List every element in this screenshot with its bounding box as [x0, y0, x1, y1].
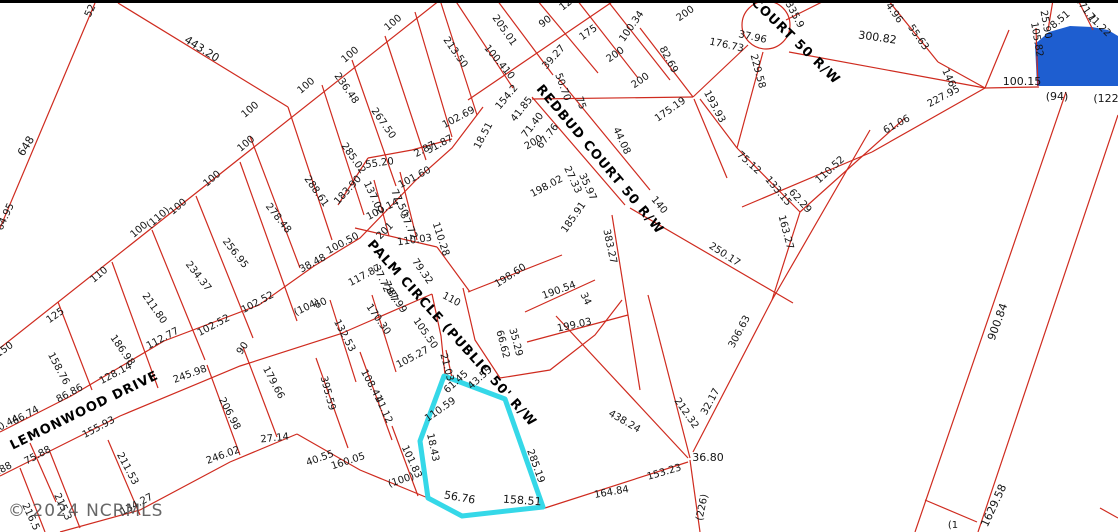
dimension-label: 100	[240, 100, 262, 121]
dimension-label: 285.02	[339, 141, 368, 176]
parcel-line	[556, 316, 688, 458]
dimension-label: 110	[89, 265, 111, 286]
dimension-label: 185.91	[559, 200, 588, 235]
dimension-label: 21.03	[437, 352, 455, 383]
dimension-label: 110.59	[423, 395, 458, 424]
dimension-label: 648	[15, 134, 37, 159]
dimension-label: 246.02	[205, 444, 242, 466]
map-top-border	[0, 0, 1118, 3]
dimension-label: (122	[1093, 92, 1118, 105]
dimension-label: 100	[202, 169, 224, 190]
dimension-label: 198.02	[529, 174, 565, 200]
dimension-label: 245.98	[172, 363, 209, 385]
dimension-label: 102.69	[441, 105, 477, 131]
dimension-label: 229.58	[748, 53, 768, 90]
parcel-line	[1100, 508, 1118, 518]
dimension-label: 125	[45, 306, 67, 326]
parcel-line	[925, 500, 977, 522]
dimension-label: 101.60	[397, 165, 433, 191]
dimension-label: 158.51	[503, 493, 542, 509]
street-label: REDBUD COURT 50 R/W	[533, 82, 667, 237]
dimension-label: 18.43	[424, 432, 441, 462]
plat-map-canvas: 52443.2064864.95100100100100100100100(11…	[0, 0, 1118, 532]
dimension-label: 38.48	[298, 252, 328, 275]
dimension-label: 199.03	[556, 317, 593, 335]
dimension-label: 100.34	[617, 9, 646, 44]
dimension-label: (226)	[694, 493, 710, 522]
dimension-label: 1629.58	[978, 482, 1009, 529]
dimension-label: 100	[236, 134, 258, 155]
dimension-label: 383.27	[600, 228, 618, 265]
dimension-label: 193.93	[701, 89, 727, 125]
dimension-label: 267.50	[369, 106, 398, 141]
dimension-label: 100	[296, 76, 318, 97]
dimension-label: 163.27	[776, 214, 796, 251]
dimension-label: 179.66	[260, 365, 286, 401]
dimension-label: 250.17	[707, 241, 742, 269]
dimension-label: 82.69	[657, 45, 680, 75]
dimension-label: 212.32	[672, 396, 701, 431]
dimension-label: 102.52	[240, 290, 276, 316]
dimension-label: 227.95	[926, 84, 962, 110]
dimension-label: 105.27	[395, 345, 431, 371]
dimension-label: 155.93	[81, 415, 117, 441]
dimension-label: (1	[948, 520, 958, 531]
dimension-label: 300.82	[858, 28, 898, 46]
dimension-label: 288.61	[302, 174, 331, 209]
dimension-label: 41.12	[372, 395, 394, 426]
dimension-label: 75.88	[23, 444, 53, 467]
dimension-label: 205.01	[490, 13, 519, 48]
dimension-label: 112.77	[145, 326, 181, 352]
dimension-label: 44.08	[610, 126, 632, 157]
dimension-label: 278.48	[263, 201, 293, 235]
dimension-label: 190.54	[541, 279, 578, 301]
dimension-label: 100.410	[481, 43, 516, 82]
dimension-label: 150	[0, 340, 16, 360]
dimension-label: 34	[578, 291, 593, 307]
parcel-line	[648, 295, 690, 458]
dimension-label: 164.84	[593, 484, 629, 501]
dimension-label: 31.87	[425, 133, 455, 156]
dimension-label: 198.60	[493, 262, 528, 290]
parcel-line	[385, 36, 426, 160]
dimension-label: 175	[578, 23, 600, 43]
dimension-label: 100	[340, 45, 362, 66]
dimension-label: 236.48	[332, 71, 361, 106]
dimension-label: 200	[605, 45, 627, 65]
dimension-label: 18.51	[472, 121, 495, 151]
dimension-label: 64.95	[0, 202, 17, 233]
dimension-label: 27.14	[260, 432, 290, 446]
dimension-label: 55.63	[905, 23, 930, 53]
parcel-line	[0, 3, 95, 228]
watermark: © 2024 NCRMLS	[8, 501, 163, 521]
dimension-label: 56.76	[443, 488, 476, 506]
dimension-label: 86.86	[55, 382, 85, 405]
dimension-label: 175.19	[653, 95, 688, 124]
dimension-label: 153.23	[646, 462, 683, 482]
dimension-label: 213.50	[441, 35, 470, 70]
dimension-label: 36.80	[692, 451, 724, 464]
dimension-label: 75.12	[734, 149, 763, 176]
dimension-label: 74.96	[879, 0, 904, 25]
dimension-label: 158.76	[45, 351, 71, 387]
parcel-line	[612, 215, 640, 390]
dimension-label: 170.30	[364, 302, 393, 337]
dimension-label: 52	[83, 3, 98, 19]
dimension-label: 200	[630, 71, 652, 91]
dimension-label: 438.24	[606, 408, 642, 435]
dimension-label: 186.98	[108, 333, 137, 368]
dimension-label: 110	[440, 290, 462, 309]
dimension-label: 102.52	[196, 313, 232, 339]
dimension-label: 75.88	[0, 460, 14, 483]
dimension-label: 75	[573, 95, 588, 111]
dimension-label: 110.52	[814, 154, 847, 186]
dimension-label: 395.59	[318, 375, 338, 412]
dimension-label: (94)	[1046, 90, 1069, 103]
dimension-label: 443.20	[182, 33, 222, 64]
dimension-label: 160.05	[330, 451, 367, 472]
dimension-label: 100.15	[1003, 75, 1042, 88]
plat-map: 52443.2064864.95100100100100100100100(11…	[0, 0, 1118, 532]
dimension-label: 61.06	[882, 113, 912, 136]
dimension-label: 211.80	[140, 291, 169, 326]
dimension-label: 200	[675, 4, 697, 24]
dimension-label: 900.84	[985, 301, 1010, 342]
dimension-label: 201	[375, 221, 396, 242]
dimension-label: 90	[235, 340, 251, 357]
dimension-label: 110.28	[430, 221, 451, 258]
dimension-label: 211.53	[114, 451, 140, 487]
parcel-line	[915, 92, 1066, 532]
dimension-label: 234.37	[183, 259, 213, 293]
parcel-line	[250, 136, 300, 268]
parcel-line	[693, 130, 870, 452]
